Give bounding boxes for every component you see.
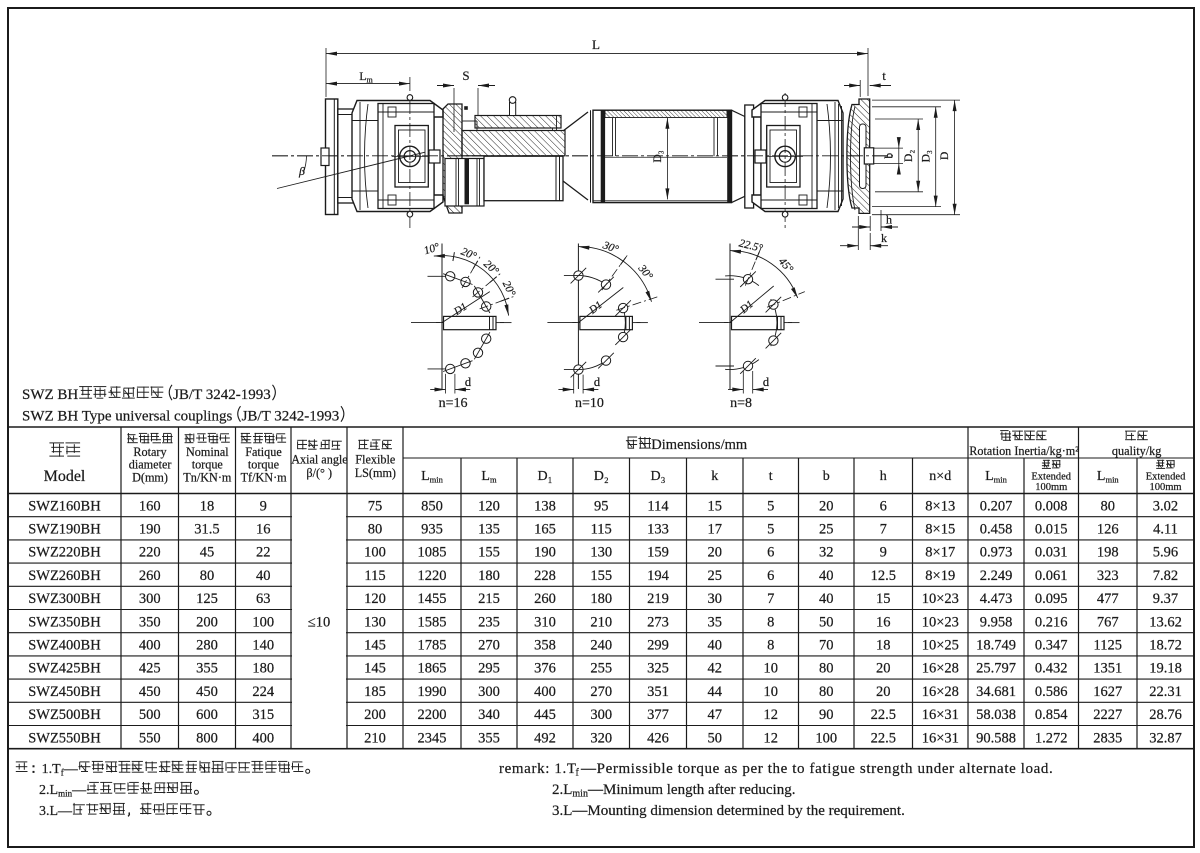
svg-text:340: 340 [478, 707, 500, 723]
svg-text:1085: 1085 [418, 545, 447, 561]
svg-text:315: 315 [252, 707, 274, 723]
svg-text:8: 8 [767, 638, 774, 654]
svg-text:47: 47 [708, 707, 723, 723]
svg-text:JB/T 3242-1993: JB/T 3242-1993 [242, 409, 340, 425]
svg-text:D: D [939, 152, 951, 160]
svg-text:155: 155 [590, 568, 612, 584]
svg-text:k: k [711, 469, 718, 484]
svg-text:17: 17 [708, 522, 723, 538]
svg-text:30°: 30° [635, 262, 655, 283]
svg-text:SWZ500BH: SWZ500BH [28, 707, 101, 723]
svg-text:425: 425 [139, 661, 161, 677]
svg-text:Lmin: Lmin [1097, 469, 1120, 485]
svg-text:400: 400 [252, 730, 274, 746]
svg-text:426: 426 [647, 730, 669, 746]
svg-text:—Permissible torque as per the: —Permissible torque as per the to fatigu… [580, 761, 1053, 777]
svg-text:Lm: Lm [481, 469, 497, 485]
svg-text:1.272: 1.272 [1035, 730, 1068, 746]
svg-text:90.588: 90.588 [976, 730, 1016, 746]
svg-text:34.681: 34.681 [976, 684, 1016, 700]
svg-text:80: 80 [819, 684, 834, 700]
svg-text:n=8: n=8 [730, 396, 752, 411]
svg-text:180: 180 [252, 661, 274, 677]
svg-text:0.015: 0.015 [1035, 522, 1068, 538]
svg-text:19.18: 19.18 [1149, 661, 1182, 677]
svg-text:—Minimum length after reducing: —Minimum length after reducing. [587, 782, 795, 798]
svg-text:D₂: D₂ [594, 469, 609, 484]
svg-text:32: 32 [819, 545, 834, 561]
svg-text:b: b [823, 469, 830, 484]
svg-text:β/(° ): β/(° ) [306, 466, 332, 480]
svg-text:350: 350 [139, 614, 161, 630]
svg-text:70: 70 [819, 638, 834, 654]
svg-text:400: 400 [139, 638, 161, 654]
svg-text:12.5: 12.5 [871, 568, 896, 584]
svg-text:LS(mm): LS(mm) [355, 466, 396, 480]
svg-text:224: 224 [252, 684, 275, 700]
svg-text:d: d [594, 375, 601, 389]
svg-text:114: 114 [647, 498, 669, 514]
svg-text:323: 323 [1097, 568, 1119, 584]
svg-text:215: 215 [478, 591, 500, 607]
svg-text:355: 355 [196, 661, 218, 677]
svg-text:—: — [63, 762, 79, 777]
svg-text:18.72: 18.72 [1149, 638, 1182, 654]
svg-text:k: k [881, 231, 887, 245]
svg-text:477: 477 [1097, 591, 1119, 607]
svg-text:165: 165 [534, 522, 556, 538]
svg-text:219: 219 [647, 591, 669, 607]
svg-text:13.62: 13.62 [1149, 614, 1182, 630]
svg-text:16×28: 16×28 [922, 661, 959, 677]
svg-text:320: 320 [590, 730, 612, 746]
svg-text:32.87: 32.87 [1149, 730, 1182, 746]
svg-text:Lmin: Lmin [985, 469, 1008, 485]
svg-text:4.11: 4.11 [1153, 522, 1178, 538]
svg-text:18: 18 [876, 638, 891, 654]
svg-text:10: 10 [764, 661, 779, 677]
svg-text:quality/kg: quality/kg [1112, 444, 1161, 458]
svg-text:0.207: 0.207 [980, 498, 1013, 514]
svg-text:0.854: 0.854 [1035, 707, 1068, 723]
svg-text:5: 5 [767, 498, 774, 514]
svg-text:20: 20 [876, 661, 891, 677]
svg-text:1990: 1990 [418, 684, 447, 700]
svg-text:12: 12 [764, 730, 779, 746]
svg-text:18: 18 [200, 498, 215, 514]
svg-text:Tf/KN·m: Tf/KN·m [241, 470, 288, 484]
svg-text:500: 500 [139, 707, 161, 723]
svg-text:L: L [592, 37, 600, 52]
svg-text:10×23: 10×23 [922, 591, 959, 607]
svg-text:SWZ450BH: SWZ450BH [28, 684, 101, 700]
svg-text:Rotation Inertia/kg·m²: Rotation Inertia/kg·m² [969, 444, 1079, 458]
svg-text:16: 16 [876, 614, 891, 630]
svg-text:300: 300 [590, 707, 612, 723]
svg-text:80: 80 [368, 522, 383, 538]
svg-text:10°: 10° [422, 241, 441, 257]
svg-text:D₃: D₃ [652, 150, 664, 162]
svg-text:25.797: 25.797 [976, 661, 1016, 677]
svg-text:450: 450 [139, 684, 161, 700]
svg-text:80: 80 [819, 661, 834, 677]
svg-text:1.T: 1.T [42, 762, 62, 777]
svg-text:≤10: ≤10 [308, 615, 330, 631]
svg-text:270: 270 [590, 684, 612, 700]
svg-text:18.749: 18.749 [976, 638, 1016, 654]
svg-text:SWZ220BH: SWZ220BH [28, 545, 101, 561]
svg-text:130: 130 [364, 614, 386, 630]
svg-text:2.249: 2.249 [980, 568, 1013, 584]
svg-text:260: 260 [139, 568, 161, 584]
svg-text:n=16: n=16 [439, 396, 468, 411]
svg-text:8×19: 8×19 [925, 568, 955, 584]
svg-text:40: 40 [819, 568, 834, 584]
svg-text:376: 376 [534, 661, 556, 677]
svg-text:550: 550 [139, 730, 161, 746]
svg-text:2835: 2835 [1093, 730, 1122, 746]
svg-text:25: 25 [819, 522, 834, 538]
svg-text:90: 90 [819, 707, 834, 723]
svg-text:2200: 2200 [418, 707, 447, 723]
svg-text:44: 44 [708, 684, 723, 700]
svg-text:445: 445 [534, 707, 556, 723]
svg-text:63: 63 [256, 591, 271, 607]
svg-text:7: 7 [880, 522, 887, 538]
svg-text:1220: 1220 [418, 568, 447, 584]
svg-text:120: 120 [364, 591, 386, 607]
svg-text:198: 198 [1097, 545, 1119, 561]
svg-text:42: 42 [708, 661, 723, 677]
svg-text:D1: D1 [451, 301, 469, 319]
svg-text:—: — [71, 783, 87, 798]
svg-text:492: 492 [534, 730, 556, 746]
svg-text:0.458: 0.458 [980, 522, 1013, 538]
svg-text:45: 45 [200, 545, 215, 561]
svg-text:1865: 1865 [418, 661, 447, 677]
svg-text:159: 159 [647, 545, 669, 561]
svg-text:280: 280 [196, 638, 218, 654]
svg-text:100mm: 100mm [1035, 482, 1067, 493]
svg-text:2227: 2227 [1093, 707, 1122, 723]
svg-text:190: 190 [139, 522, 161, 538]
svg-text:D(mm): D(mm) [132, 470, 168, 484]
svg-text:D₃: D₃ [651, 469, 666, 484]
svg-text:16×28: 16×28 [922, 684, 959, 700]
svg-text:767: 767 [1097, 614, 1119, 630]
svg-text:0.061: 0.061 [1035, 568, 1068, 584]
svg-text:D₁: D₁ [538, 469, 553, 484]
svg-text:h: h [886, 213, 892, 227]
svg-text:f: f [576, 768, 580, 779]
svg-text:Axial angle: Axial angle [291, 453, 348, 467]
svg-text:351: 351 [647, 684, 669, 700]
svg-text:185: 185 [364, 684, 386, 700]
svg-text:115: 115 [591, 522, 612, 538]
svg-text:240: 240 [590, 638, 612, 654]
svg-text:SWZ BH Type universal coupling: SWZ BH Type universal couplings [22, 409, 232, 425]
svg-text:JB/T 3242-1993: JB/T 3242-1993 [173, 387, 271, 403]
svg-text:22.31: 22.31 [1149, 684, 1182, 700]
svg-text:h: h [880, 469, 887, 484]
svg-text:45°: 45° [776, 256, 796, 276]
svg-text:270: 270 [478, 638, 500, 654]
svg-text:220: 220 [139, 545, 161, 561]
svg-text:Extended: Extended [1146, 472, 1186, 483]
svg-text:210: 210 [364, 730, 386, 746]
svg-text:n=10: n=10 [575, 396, 604, 411]
svg-text:850: 850 [421, 498, 443, 514]
svg-text:Lm: Lm [359, 69, 373, 85]
svg-text:5: 5 [767, 522, 774, 538]
svg-text:80: 80 [1101, 498, 1116, 514]
svg-text:145: 145 [364, 638, 386, 654]
svg-text:35: 35 [708, 614, 723, 630]
svg-text:SWZ425BH: SWZ425BH [28, 661, 101, 677]
svg-text:115: 115 [364, 568, 385, 584]
svg-text:t: t [769, 469, 773, 484]
svg-text:t: t [882, 68, 886, 83]
svg-text:138: 138 [534, 498, 556, 514]
svg-text:75: 75 [368, 498, 383, 514]
svg-text:3.L—: 3.L— [39, 804, 73, 819]
svg-text:20: 20 [876, 684, 891, 700]
svg-text:0.973: 0.973 [980, 545, 1013, 561]
svg-text:0.031: 0.031 [1035, 545, 1068, 561]
svg-text:20°: 20° [500, 279, 518, 299]
svg-text:9: 9 [260, 498, 267, 514]
svg-text:7: 7 [767, 591, 774, 607]
svg-text:2.L: 2.L [39, 783, 58, 798]
svg-text:450: 450 [196, 684, 218, 700]
svg-text:3.L—Mounting dimension determi: 3.L—Mounting dimension determined by the… [552, 803, 905, 819]
svg-text:16×31: 16×31 [922, 730, 959, 746]
svg-text:31.5: 31.5 [194, 522, 219, 538]
svg-text:SWZ350BH: SWZ350BH [28, 614, 101, 630]
svg-text:d: d [465, 375, 472, 389]
svg-text:200: 200 [364, 707, 386, 723]
svg-text:20°: 20° [459, 246, 479, 263]
svg-text:Lmin: Lmin [421, 469, 444, 485]
svg-text:355: 355 [478, 730, 500, 746]
svg-text:7.82: 7.82 [1153, 568, 1178, 584]
svg-text:160: 160 [139, 498, 161, 514]
svg-text:50: 50 [708, 730, 723, 746]
svg-text:145: 145 [364, 661, 386, 677]
svg-text:100mm: 100mm [1150, 482, 1182, 493]
svg-text:SWZ190BH: SWZ190BH [28, 522, 101, 538]
svg-text:600: 600 [196, 707, 218, 723]
svg-text:135: 135 [478, 522, 500, 538]
svg-text:299: 299 [647, 638, 669, 654]
svg-text:130: 130 [590, 545, 612, 561]
svg-text:8×17: 8×17 [925, 545, 955, 561]
svg-text:10: 10 [764, 684, 779, 700]
svg-text:β: β [298, 164, 305, 178]
svg-text:40: 40 [256, 568, 271, 584]
svg-text:120: 120 [478, 498, 500, 514]
svg-text:100: 100 [364, 545, 386, 561]
svg-text:235: 235 [478, 614, 500, 630]
svg-text:16: 16 [256, 522, 271, 538]
svg-text:22: 22 [256, 545, 271, 561]
svg-text:9: 9 [880, 545, 887, 561]
svg-text:8×13: 8×13 [925, 498, 955, 514]
svg-text:22.5°: 22.5° [738, 237, 765, 255]
svg-text:180: 180 [478, 568, 500, 584]
svg-text:1785: 1785 [418, 638, 447, 654]
svg-text:40: 40 [708, 638, 723, 654]
svg-text:SWZ160BH: SWZ160BH [28, 498, 101, 514]
svg-text:30: 30 [708, 591, 723, 607]
svg-text:6: 6 [880, 498, 887, 514]
svg-text:Model: Model [44, 468, 86, 485]
svg-text:20: 20 [708, 545, 723, 561]
svg-text:d: d [763, 375, 770, 389]
svg-text:3.02: 3.02 [1153, 498, 1178, 514]
svg-text:0.432: 0.432 [1035, 661, 1068, 677]
svg-text:6: 6 [767, 545, 774, 561]
svg-text:1455: 1455 [418, 591, 447, 607]
svg-text:0.216: 0.216 [1035, 614, 1068, 630]
svg-text:2.L: 2.L [552, 782, 572, 798]
svg-text:300: 300 [139, 591, 161, 607]
svg-text:Flexible: Flexible [355, 453, 395, 467]
svg-text:10×23: 10×23 [922, 614, 959, 630]
svg-text:20°: 20° [481, 258, 501, 278]
svg-text:140: 140 [252, 638, 274, 654]
svg-text:28.76: 28.76 [1149, 707, 1182, 723]
svg-text:180: 180 [590, 591, 612, 607]
svg-text:100: 100 [252, 614, 274, 630]
svg-text:15: 15 [708, 498, 723, 514]
svg-text:133: 133 [647, 522, 669, 538]
svg-text:0.586: 0.586 [1035, 684, 1068, 700]
svg-text:155: 155 [478, 545, 500, 561]
svg-text:300: 300 [478, 684, 500, 700]
svg-text:255: 255 [590, 661, 612, 677]
svg-text:8×15: 8×15 [925, 522, 955, 538]
svg-text:200: 200 [196, 614, 218, 630]
svg-text:800: 800 [196, 730, 218, 746]
svg-text:SWZ BH: SWZ BH [22, 387, 78, 403]
svg-text:95: 95 [594, 498, 609, 514]
svg-text:5.96: 5.96 [1153, 545, 1178, 561]
svg-text:1627: 1627 [1093, 684, 1122, 700]
svg-text:935: 935 [421, 522, 443, 538]
svg-text:8: 8 [767, 614, 774, 630]
svg-text:310: 310 [534, 614, 556, 630]
svg-text:16×31: 16×31 [922, 707, 959, 723]
svg-text:SWZ260BH: SWZ260BH [28, 568, 101, 584]
svg-text:S: S [462, 68, 469, 83]
svg-text:9.958: 9.958 [980, 614, 1013, 630]
svg-text:20: 20 [819, 498, 834, 514]
svg-text:n×d: n×d [929, 469, 951, 484]
svg-text:D₃: D₃ [920, 150, 932, 162]
svg-text:SWZ400BH: SWZ400BH [28, 638, 101, 654]
svg-text:SWZ550BH: SWZ550BH [28, 730, 101, 746]
svg-text:50: 50 [819, 614, 834, 630]
svg-text:22.5: 22.5 [871, 730, 896, 746]
svg-text:12: 12 [764, 707, 779, 723]
svg-text:25: 25 [708, 568, 723, 584]
svg-text:Extended: Extended [1031, 472, 1071, 483]
svg-text:remark: 1.T: remark: 1.T [499, 761, 577, 777]
svg-text:15: 15 [876, 591, 891, 607]
svg-text:295: 295 [478, 661, 500, 677]
svg-text:194: 194 [647, 568, 670, 584]
svg-text:0.095: 0.095 [1035, 591, 1068, 607]
svg-text:D₂: D₂ [903, 150, 915, 162]
svg-text:1125: 1125 [1094, 638, 1122, 654]
svg-text:210: 210 [590, 614, 612, 630]
svg-text:358: 358 [534, 638, 556, 654]
svg-text:min: min [58, 789, 73, 799]
svg-text:325: 325 [647, 661, 669, 677]
svg-text:1585: 1585 [418, 614, 447, 630]
svg-text:80: 80 [200, 568, 215, 584]
svg-text:0.347: 0.347 [1035, 638, 1068, 654]
svg-text:min: min [572, 789, 588, 800]
svg-text:125: 125 [196, 591, 218, 607]
svg-text:228: 228 [534, 568, 556, 584]
svg-text:4.473: 4.473 [980, 591, 1013, 607]
svg-text:400: 400 [534, 684, 556, 700]
svg-text:40: 40 [819, 591, 834, 607]
svg-text:22.5: 22.5 [871, 707, 896, 723]
svg-text:1351: 1351 [1093, 661, 1122, 677]
svg-text:190: 190 [534, 545, 556, 561]
svg-text:0.008: 0.008 [1035, 498, 1068, 514]
svg-text:10×25: 10×25 [922, 638, 959, 654]
svg-text:30°: 30° [600, 239, 620, 256]
svg-text:273: 273 [647, 614, 669, 630]
svg-text:126: 126 [1097, 522, 1119, 538]
svg-text:260: 260 [534, 591, 556, 607]
svg-text:58.038: 58.038 [976, 707, 1016, 723]
svg-text:377: 377 [647, 707, 669, 723]
svg-text:2345: 2345 [418, 730, 447, 746]
svg-text:Dimensions/mm: Dimensions/mm [651, 437, 748, 453]
svg-text:100: 100 [815, 730, 837, 746]
svg-text:6: 6 [767, 568, 774, 584]
svg-text:SWZ300BH: SWZ300BH [28, 591, 101, 607]
svg-text:9.37: 9.37 [1153, 591, 1178, 607]
svg-text:Tn/KN·m: Tn/KN·m [183, 470, 232, 484]
